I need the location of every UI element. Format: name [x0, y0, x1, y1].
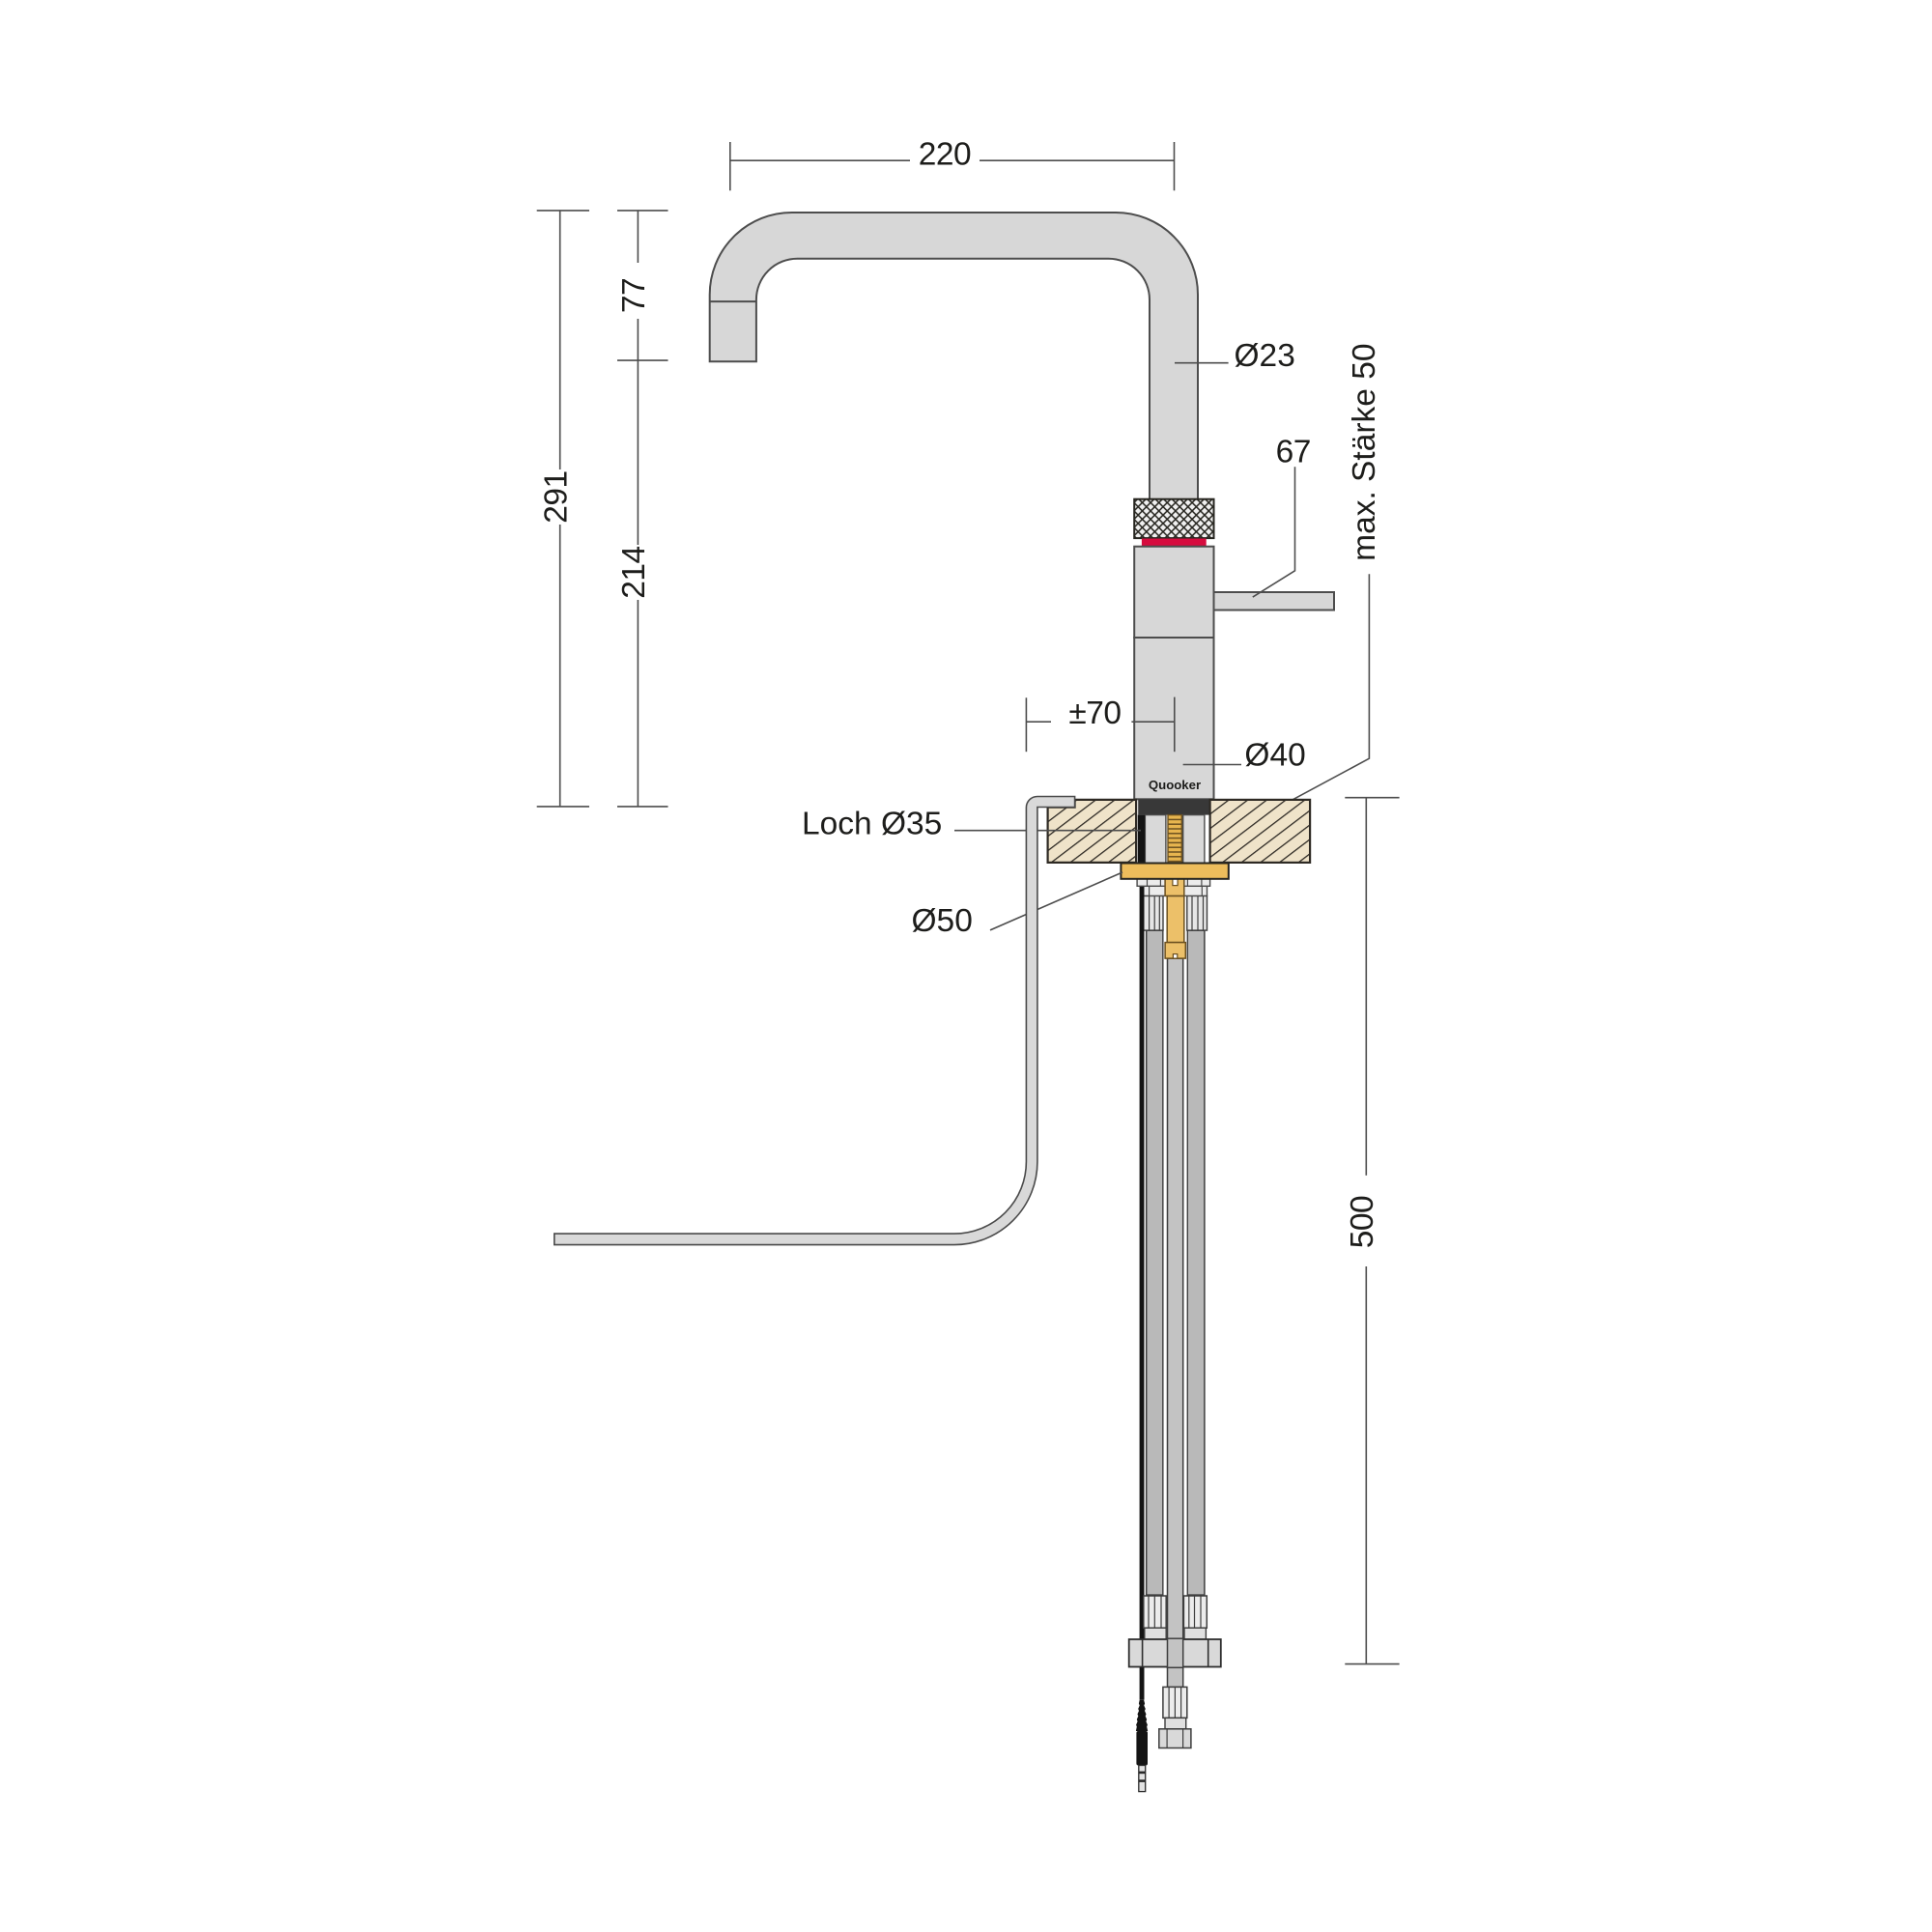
- svg-text:±70: ±70: [1068, 696, 1121, 731]
- svg-text:Ø50: Ø50: [912, 903, 973, 939]
- svg-text:67: 67: [1276, 434, 1311, 469]
- svg-text:220: 220: [919, 136, 971, 172]
- svg-text:291: 291: [539, 470, 575, 523]
- svg-text:max. Stärke 50: max. Stärke 50: [1347, 344, 1382, 561]
- svg-text:Ø23: Ø23: [1235, 338, 1295, 374]
- svg-text:Ø40: Ø40: [1244, 738, 1305, 774]
- svg-text:77: 77: [616, 278, 652, 313]
- svg-text:Loch Ø35: Loch Ø35: [802, 807, 942, 842]
- svg-text:214: 214: [616, 546, 652, 598]
- svg-text:500: 500: [1345, 1196, 1380, 1248]
- svg-text:Quooker: Quooker: [1149, 778, 1201, 792]
